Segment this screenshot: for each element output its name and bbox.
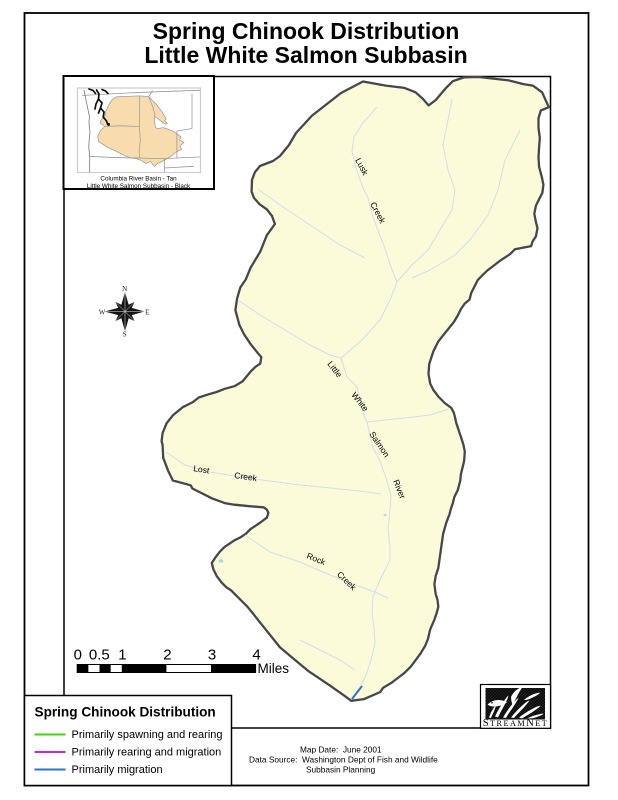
svg-text:STREAMNET: STREAMNET — [483, 718, 549, 729]
svg-text:Little White Salmon Subbasin: Little White Salmon Subbasin — [144, 42, 467, 68]
svg-text:Little White Salmon Subbasin -: Little White Salmon Subbasin - Black — [87, 183, 191, 190]
svg-text:Map Date: June 2001: Map Date: June 2001 — [300, 745, 382, 755]
svg-text:W: W — [99, 308, 106, 316]
svg-text:E: E — [145, 308, 149, 316]
svg-text:Primarily rearing and migratio: Primarily rearing and migration — [72, 747, 222, 759]
svg-text:0: 0 — [74, 647, 82, 664]
svg-text:Spring Chinook Distribution: Spring Chinook Distribution — [153, 18, 460, 44]
svg-text:2: 2 — [163, 647, 171, 664]
svg-text:Spring Chinook Distribution: Spring Chinook Distribution — [35, 705, 216, 720]
svg-text:Primarily spawning and rearing: Primarily spawning and rearing — [72, 729, 223, 741]
svg-text:Primarily migration: Primarily migration — [72, 764, 163, 776]
svg-text:0.5: 0.5 — [89, 647, 110, 664]
svg-text:S: S — [123, 331, 127, 339]
svg-text:Subbasin Planning: Subbasin Planning — [306, 765, 376, 775]
svg-text:3: 3 — [208, 647, 216, 664]
svg-text:Columbia River Basin - Tan: Columbia River Basin - Tan — [100, 176, 177, 183]
svg-text:Data Source: Washington Dept: Data Source: Washington Dept of Fish and… — [249, 755, 438, 765]
svg-text:1: 1 — [118, 647, 126, 664]
svg-text:Miles: Miles — [258, 661, 290, 676]
svg-text:N: N — [122, 285, 127, 293]
